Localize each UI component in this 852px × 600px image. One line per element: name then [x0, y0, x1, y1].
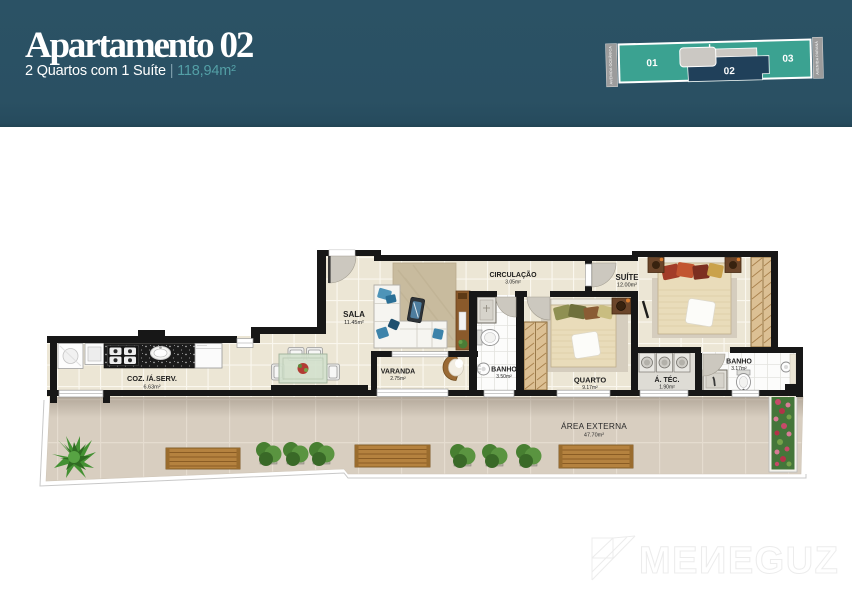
- svg-text:SALA: SALA: [343, 310, 365, 319]
- svg-text:Á. TÉC.: Á. TÉC.: [655, 375, 680, 384]
- svg-text:3.17m²: 3.17m²: [731, 366, 747, 372]
- svg-text:2.75m²: 2.75m²: [390, 376, 406, 382]
- svg-text:COZ. /Á.SERV.: COZ. /Á.SERV.: [127, 374, 177, 383]
- svg-text:QUARTO: QUARTO: [574, 376, 607, 385]
- svg-text:MEИEGUZ: MEИEGUZ: [639, 540, 839, 582]
- svg-text:9.17m²: 9.17m²: [582, 385, 598, 391]
- svg-text:02: 02: [724, 66, 736, 77]
- svg-text:1.90m²: 1.90m²: [659, 385, 675, 391]
- svg-text:CIRCULAÇÃO: CIRCULAÇÃO: [489, 270, 537, 279]
- svg-text:47.70m²: 47.70m²: [584, 433, 604, 439]
- svg-text:01: 01: [646, 58, 658, 69]
- svg-text:BANHO: BANHO: [491, 367, 517, 374]
- svg-text:6.63m²: 6.63m²: [143, 385, 160, 391]
- svg-text:BANHO: BANHO: [726, 359, 752, 366]
- svg-text:12.00m²: 12.00m²: [617, 283, 637, 289]
- svg-text:03: 03: [782, 53, 794, 64]
- svg-text:VARANDA: VARANDA: [381, 369, 415, 376]
- svg-text:11.45m²: 11.45m²: [344, 320, 364, 326]
- svg-text:ÁREA EXTERNA: ÁREA EXTERNA: [561, 421, 627, 431]
- svg-text:3.50m²: 3.50m²: [496, 374, 512, 380]
- svg-text:SUÍTE: SUÍTE: [616, 273, 639, 282]
- svg-text:3.05m²: 3.05m²: [505, 280, 521, 286]
